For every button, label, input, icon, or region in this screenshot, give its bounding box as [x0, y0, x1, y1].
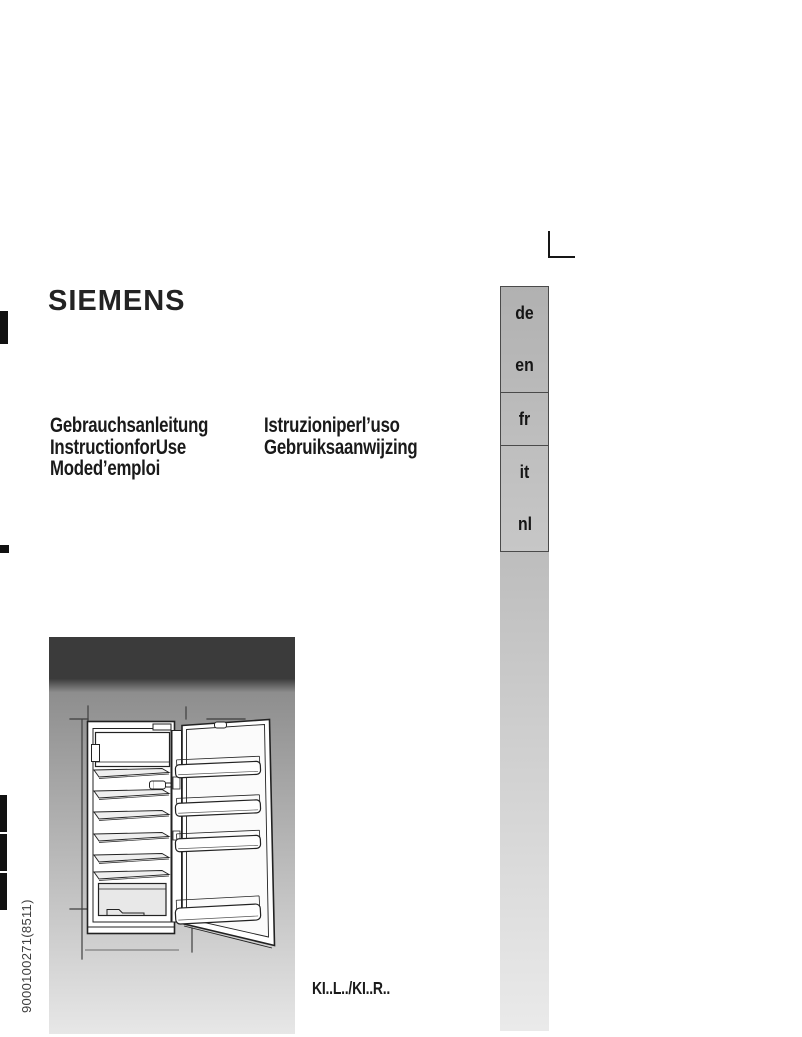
print-registration-mark [0, 834, 7, 871]
title-fr: Moded’emploi [50, 458, 248, 480]
crop-mark-icon [548, 231, 575, 258]
language-tab-de: de [501, 287, 548, 339]
print-registration-mark [0, 311, 8, 344]
language-tab-fr: fr [501, 392, 548, 445]
title-it: Istruzioniperl’uso [264, 415, 456, 437]
title-column-right: Istruzioniperl’uso Gebruiksaanwijzing [264, 415, 456, 458]
print-registration-mark [0, 873, 7, 910]
title-en: InstructionforUse [50, 437, 248, 459]
print-registration-mark [0, 795, 7, 832]
manual-cover-page: SIEMENS de en fr it nl Gebrauchsanleitun… [0, 0, 802, 1037]
title-nl: Gebruiksaanwijzing [264, 437, 456, 459]
title-de: Gebrauchsanleitung [50, 415, 248, 437]
refrigerator-illustration [49, 637, 295, 1034]
language-tab-en: en [501, 339, 548, 391]
model-reference: KI..L../KI..R.. [312, 978, 410, 999]
language-tab-nl: nl [501, 499, 548, 551]
language-tab-box: de en fr it nl [500, 286, 549, 552]
refrigerator-line-drawing [49, 637, 295, 1034]
print-registration-mark [0, 545, 9, 553]
brand-logo: SIEMENS [48, 285, 186, 318]
language-tab-it: it [501, 445, 548, 498]
order-number: 9000100271(8511) [19, 899, 34, 1013]
title-column-left: Gebrauchsanleitung InstructionforUse Mod… [50, 415, 248, 480]
side-gradient-column [500, 552, 549, 1031]
